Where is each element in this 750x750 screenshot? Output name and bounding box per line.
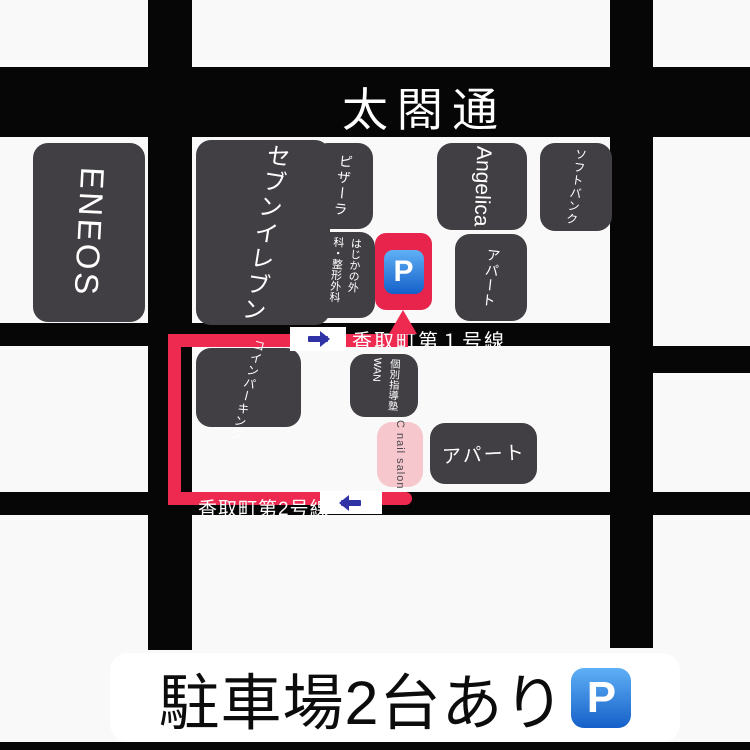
banner-parking-icon: P — [571, 668, 631, 728]
building-label: はじかの外科・整形外科 — [324, 236, 364, 314]
building-juku-wan: 個別指導塾WAN — [350, 354, 418, 417]
road-bottom-edge — [0, 742, 750, 750]
parking-map: 太閤通 香取町第１号線 香取町第2号線 ENEOS セブンイレブン ピザーラ は… — [0, 0, 750, 750]
taiko-dori-label: 太閤通 — [342, 74, 507, 140]
left-arrow-icon — [341, 500, 361, 506]
parking-icon: P — [384, 250, 424, 294]
info-banner: 駐車場2台あり P — [110, 653, 680, 742]
building-label: セブンイレブン — [231, 140, 294, 325]
building-angelica: Angelica — [437, 143, 527, 230]
route-arrow-up-icon — [389, 310, 417, 334]
building-label: ENEOS — [67, 166, 112, 298]
katori-street1-label: 香取町第１号線 — [352, 325, 506, 354]
building-label: コインパーキング — [228, 337, 269, 438]
direction-sign-east — [290, 327, 346, 351]
building-apartment-upper: アパート — [455, 234, 527, 321]
building-label: Angelica — [469, 146, 496, 227]
parking-letter: P — [393, 255, 413, 289]
building-apartment-lower: アパート — [430, 423, 537, 484]
building-softbank: ソフトバンク — [540, 143, 612, 231]
route-segment-vertical — [168, 337, 181, 505]
banner-text: 駐車場2台あり — [159, 653, 566, 742]
building-hajika-clinic: はじかの外科・整形外科 — [313, 232, 375, 318]
banner-parking-letter: P — [587, 673, 616, 723]
building-pizza-la: ピザーラ — [313, 143, 373, 229]
direction-sign-west — [320, 491, 382, 514]
building-coin-parking: コインパーキング — [196, 348, 301, 427]
building-c-nail-salon: C nail salon — [377, 422, 423, 487]
building-label: C nail salon — [394, 420, 406, 489]
right-arrow-icon — [308, 336, 328, 342]
road-katori-1-east — [633, 346, 750, 373]
building-label: 個別指導塾WAN — [365, 357, 404, 415]
building-label: アパート — [441, 438, 526, 469]
building-label: ピザーラ — [330, 153, 357, 219]
katori-street2-label: 香取町第2号線 — [198, 494, 330, 521]
building-eneos: ENEOS — [33, 143, 145, 322]
building-seven-eleven: セブンイレブン — [196, 140, 330, 325]
building-label: ソフトバンク — [562, 147, 590, 227]
building-label: アパート — [478, 247, 504, 309]
parking-destination-marker: P — [375, 233, 432, 310]
